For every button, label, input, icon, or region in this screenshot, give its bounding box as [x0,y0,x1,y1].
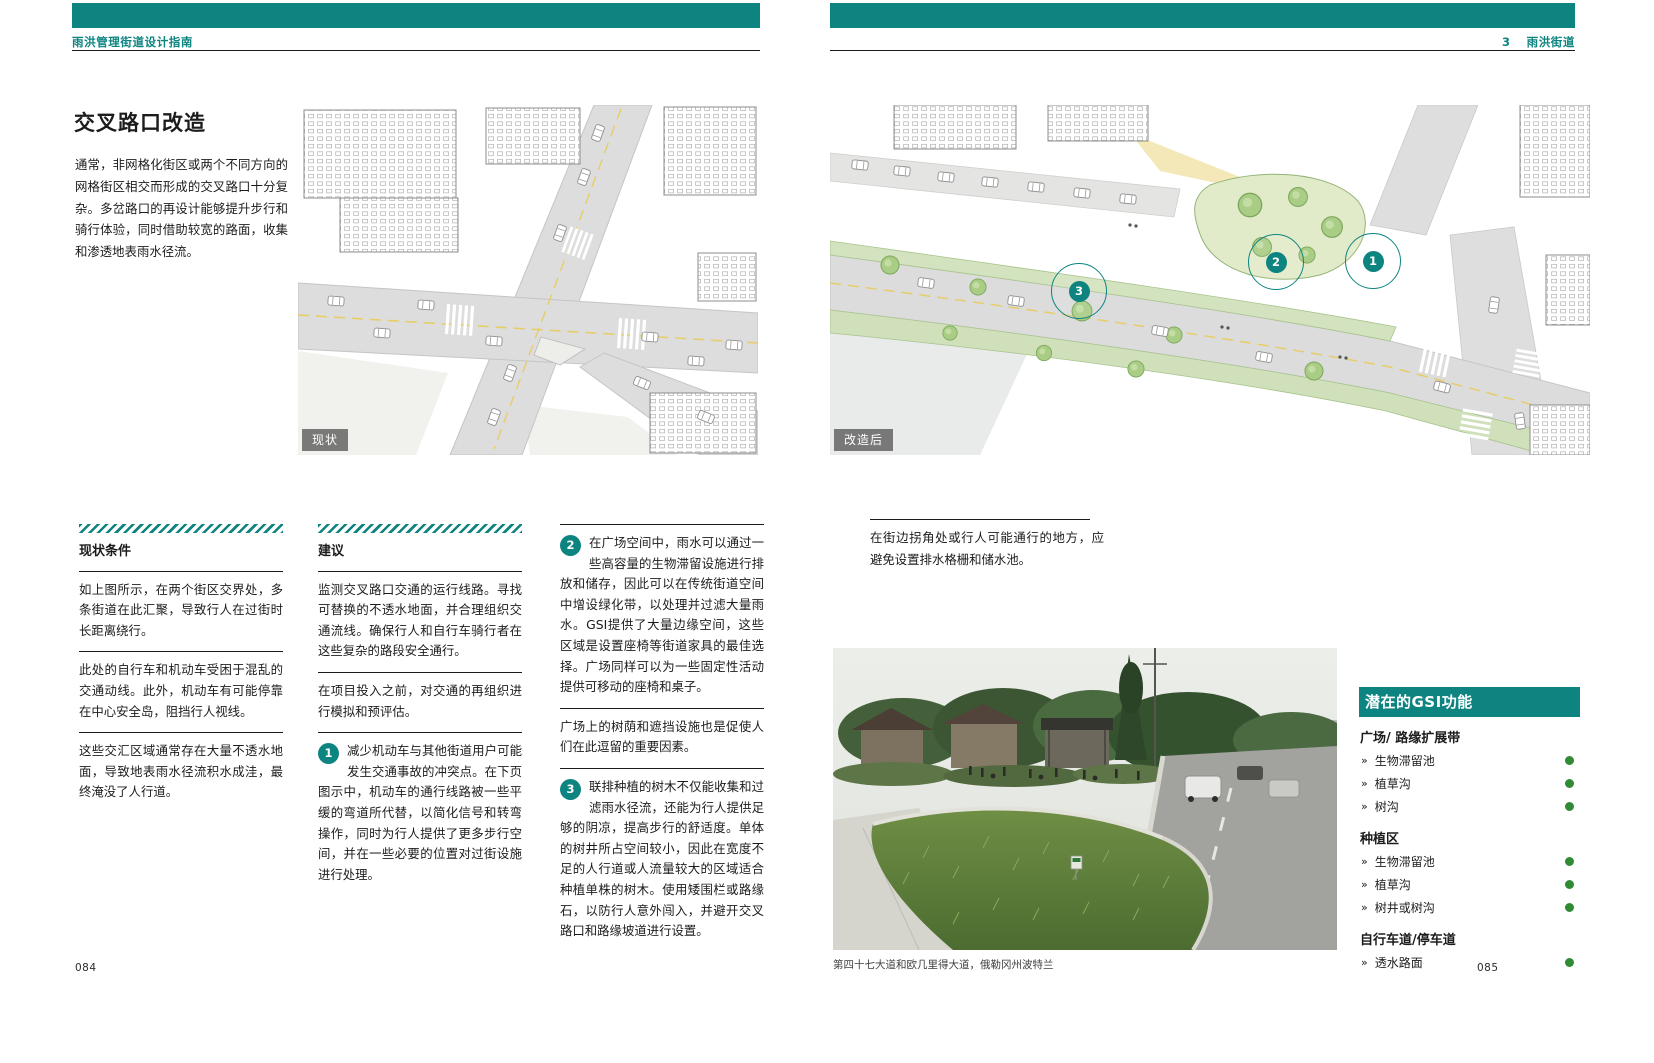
sidebar-item: » 植草沟 [1359,772,1580,795]
green-dot-icon [1565,802,1574,811]
intro-paragraph: 通常，非网格化街区或两个不同方向的网格街区相交而形成的交叉路口十分复杂。多岔路口… [75,154,288,263]
figure-label-retrofit: 改造后 [834,429,893,451]
bullet-icon: » [1361,956,1368,969]
bullet-icon: » [1361,754,1368,767]
number-badge-1: 1 [318,743,339,764]
right-running-header: 3雨洪街道 [830,34,1575,50]
figure-marker-3-number: 3 [1069,281,1090,302]
sidebar-item: » 生物滞留池 [1359,850,1580,873]
hatch-bar [318,524,522,533]
sidebar-item-label: 树井或树沟 [1375,899,1565,916]
green-dot-icon [1565,958,1574,967]
sidebar-item-label: 生物滞留池 [1375,853,1565,870]
existing-intersection-drawing [298,105,758,455]
sidebar-item-label: 透水路面 [1375,954,1565,971]
recommendations-paragraph: 监测交叉路口交通的运行线路。寻找可替换的不透水地面，并合理组织交通流线。确保行人… [318,571,522,672]
illustration-retrofitted-intersection: 改造后 [830,105,1590,455]
sidebar-item: » 植草沟 [1359,873,1580,896]
illustration-existing-intersection: 现状 [298,105,758,455]
figure-marker-1: 1 [1345,233,1401,289]
left-running-header: 雨洪管理街道设计指南 [72,34,193,50]
figure-label-existing: 现状 [302,429,348,451]
numbered-item-3: 3联排种植的树木不仅能收集和过滤雨水径流，还能为行人提供足够的阴凉，提高步行的舒… [560,768,764,952]
green-dot-icon [1565,779,1574,788]
page-title: 交叉路口改造 [74,107,206,137]
sidebar-group-heading: 自行车道/停车道 [1359,929,1580,948]
bullet-icon: » [1361,855,1368,868]
corner-note-paragraph: 在街边拐角处或行人可能通行的地方，应避免设置排水格栅和储水池。 [870,527,1104,570]
sidebar-item: » 生物滞留池 [1359,749,1580,772]
right-page-number: 085 [1477,962,1499,974]
left-header-rule [72,50,760,51]
green-dot-icon [1565,903,1574,912]
green-dot-icon [1565,857,1574,866]
left-page-top-bar [72,3,760,28]
bullet-icon: » [1361,777,1368,790]
column-recommendations: 建议 监测交叉路口交通的运行线路。寻找可替换的不透水地面，并合理组织交通流线。确… [318,524,522,895]
numbered-item-1-text: 减少机动车与其他街道用户可能发生交通事故的冲突点。在下页图示中，机动车的通行线路… [318,743,522,882]
figure-marker-3: 3 [1051,263,1107,319]
green-dot-icon [1565,880,1574,889]
street-photo [833,648,1337,950]
numbered-item-1: 1减少机动车与其他街道用户可能发生交通事故的冲突点。在下页图示中，机动车的通行线… [318,732,522,895]
conditions-heading: 现状条件 [79,540,283,571]
conditions-paragraph: 此处的自行车和机动车受困于混乱的交通动线。此外，机动车有可能停靠在中心安全岛，阻… [79,651,283,732]
sidebar-item: » 树沟 [1359,795,1580,818]
numbered-item-2: 2在广场空间中，雨水可以通过一些高容量的生物滞留设施进行排放和储存，因此可以在传… [560,524,764,708]
photo-caption: 第四十七大道和欧几里得大道，俄勒冈州波特兰 [833,957,1054,972]
sidebar-item: » 透水路面 [1359,951,1580,974]
green-dot-icon [1565,756,1574,765]
retrofitted-intersection-drawing [830,105,1590,455]
sidebar-item-label: 植草沟 [1375,775,1565,792]
column-recommendations-continued: 2在广场空间中，雨水可以通过一些高容量的生物滞留设施进行排放和储存，因此可以在传… [560,524,764,952]
column-existing-conditions: 现状条件 如上图所示，在两个街区交界处，多条街道在此汇聚，导致行人在过街时长距离… [79,524,283,813]
sidebar-item-label: 植草沟 [1375,876,1565,893]
note-rule [870,519,1090,520]
street-photo-image [833,648,1337,950]
gsi-sidebar: 潜在的GSI功能 广场/ 路缘扩展带 » 生物滞留池 » 植草沟 » 树沟 种植… [1359,687,1580,974]
recommendations-heading: 建议 [318,540,522,571]
number-badge-3: 3 [560,779,581,800]
bullet-icon: » [1361,800,1368,813]
left-page-number: 084 [75,962,97,974]
number-badge-2: 2 [560,535,581,556]
plaza-shade-paragraph: 广场上的树荫和遮挡设施也是促使人们在此逗留的重要因素。 [560,708,764,768]
chapter-title: 雨洪街道 [1527,35,1575,49]
sidebar-item-label: 生物滞留池 [1375,752,1565,769]
bullet-icon: » [1361,878,1368,891]
numbered-item-3-text: 联排种植的树木不仅能收集和过滤雨水径流，还能为行人提供足够的阴凉，提高步行的舒适… [560,779,764,938]
numbered-item-2-text: 在广场空间中，雨水可以通过一些高容量的生物滞留设施进行排放和储存，因此可以在传统… [560,535,764,694]
figure-marker-1-number: 1 [1363,251,1384,272]
conditions-paragraph: 这些交汇区域通常存在大量不透水地面，导致地表雨水径流积水成洼，最终淹没了人行道。 [79,732,283,813]
right-header-rule [830,50,1575,51]
sidebar-item-label: 树沟 [1375,798,1565,815]
sidebar-group-heading: 广场/ 路缘扩展带 [1359,727,1580,746]
figure-marker-2-number: 2 [1266,252,1287,273]
bullet-icon: » [1361,901,1368,914]
figure-marker-2: 2 [1248,234,1304,290]
sidebar-title: 潜在的GSI功能 [1359,687,1580,717]
hatch-bar [79,524,283,533]
sidebar-item: » 树井或树沟 [1359,896,1580,919]
sidebar-group-heading: 种植区 [1359,828,1580,847]
right-page-top-bar [830,3,1575,28]
chapter-number: 3 [1502,35,1511,49]
conditions-paragraph: 如上图所示，在两个街区交界处，多条街道在此汇聚，导致行人在过街时长距离绕行。 [79,571,283,652]
recommendations-paragraph: 在项目投入之前，对交通的再组织进行模拟和预评估。 [318,672,522,732]
